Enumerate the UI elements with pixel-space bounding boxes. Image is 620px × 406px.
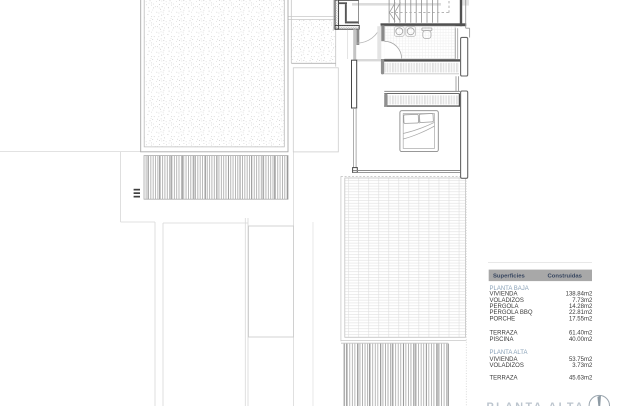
- svg-text:53.75m2: 53.75m2: [569, 357, 593, 363]
- svg-text:PLANTA ALTA: PLANTA ALTA: [487, 401, 586, 406]
- svg-text:PERGOLA BBQ: PERGOLA BBQ: [490, 310, 533, 316]
- svg-text:Construidas: Construidas: [548, 273, 583, 279]
- svg-text:PORCHE: PORCHE: [490, 316, 516, 322]
- svg-text:VOLADIZOS: VOLADIZOS: [490, 363, 524, 369]
- svg-text:VIVIENDA: VIVIENDA: [490, 357, 518, 363]
- svg-text:22.81m2: 22.81m2: [569, 310, 593, 316]
- svg-text:Superficies: Superficies: [493, 273, 525, 279]
- svg-text:7.73m2: 7.73m2: [572, 298, 593, 304]
- svg-text:3.73m2: 3.73m2: [572, 363, 593, 369]
- svg-text:138.84m2: 138.84m2: [566, 291, 593, 297]
- svg-text:61.40m2: 61.40m2: [569, 330, 593, 336]
- svg-text:17.55m2: 17.55m2: [569, 316, 593, 322]
- svg-text:PLANTA ALTA: PLANTA ALTA: [490, 350, 528, 356]
- svg-text:PERGOLA: PERGOLA: [490, 304, 519, 310]
- svg-text:VIVIENDA: VIVIENDA: [490, 291, 518, 297]
- svg-text:14.28m2: 14.28m2: [569, 304, 593, 310]
- svg-text:TERRAZA: TERRAZA: [490, 330, 518, 336]
- svg-text:40.00m2: 40.00m2: [569, 337, 593, 343]
- svg-text:45.63m2: 45.63m2: [569, 376, 593, 382]
- svg-text:PISCINA: PISCINA: [490, 337, 514, 343]
- svg-text:VOLADIZOS: VOLADIZOS: [490, 298, 524, 304]
- svg-text:TERRAZA: TERRAZA: [490, 376, 518, 382]
